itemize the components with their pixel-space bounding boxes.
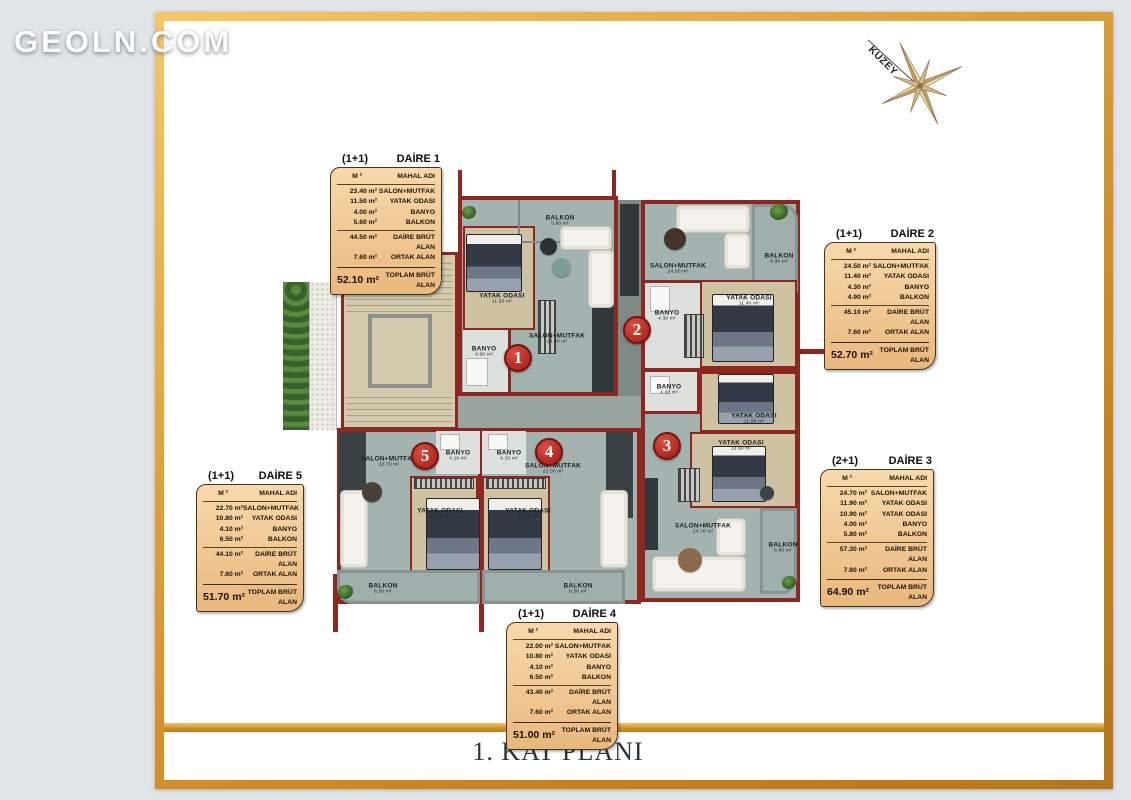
site-logo: GEOLN.COM (14, 24, 232, 60)
total-area-value: 64.90 m² (827, 585, 869, 601)
sofa-graphic (588, 250, 614, 308)
sofa-graphic (724, 233, 750, 269)
table-row: 7.60 m²ORTAK ALAN (337, 253, 435, 263)
table-row: 4.30 m²BANYO (831, 283, 929, 293)
table-row: 23.40 m²SALON+MUTFAK (337, 187, 435, 197)
title-band-divider (164, 723, 1104, 732)
table-graphic (760, 486, 774, 500)
unit-area-table: M ²MAHAL ADI 24.50 m²SALON+MUTFAK 11.40 … (824, 242, 936, 370)
table-row: 4.10 m²BANYO (513, 663, 611, 673)
compass-rose: KUZEY (856, 26, 968, 138)
room-name: SALON+MUTFAK (867, 489, 927, 499)
room-label: SALON+MUTFAK24.50 m² (650, 263, 706, 276)
table-row: 5.80 m²BALKON (827, 530, 927, 540)
area-value: 5.60 m² (337, 218, 377, 228)
room-area: 11.50 m² (479, 300, 524, 306)
room-label: BALKON4.90 m² (764, 253, 793, 266)
room-area: 10.80 m² (417, 515, 462, 521)
row-label: DAİRE BRÜT ALAN (871, 308, 929, 328)
area-value: 4.90 m² (831, 293, 871, 303)
row-label: ORTAK ALAN (243, 570, 297, 580)
table-row: 10.80 m²YATAK ODASI (203, 514, 297, 524)
green-planting (283, 282, 309, 430)
balcony-floor (482, 570, 625, 604)
info-card-daire-4: (1+1) DAİRE 4 M ²MAHAL ADI 22.00 m²SALON… (506, 608, 618, 750)
room-name: YATAK ODASI (377, 197, 435, 207)
table-row: 6.50 m²BALKON (203, 535, 297, 545)
area-value: 24.50 m² (831, 262, 871, 272)
room-area: 24.70 m² (675, 530, 731, 536)
room-name: BALKON (243, 535, 297, 545)
room-column-header: MAHAL ADI (243, 489, 297, 499)
wardrobe (414, 478, 474, 489)
row-label: DAİRE BRÜT ALAN (867, 545, 927, 565)
elevator (368, 314, 432, 388)
corridor-floor (458, 396, 641, 428)
room-area: 4.90 m² (764, 260, 793, 266)
area-value: 44.10 m² (203, 550, 243, 560)
table-row: 4.90 m²BALKON (831, 293, 929, 303)
room-label: BANYO4.10 m² (446, 450, 470, 463)
table-row: 7.60 m²ORTAK ALAN (827, 566, 927, 576)
table-header-row: M ²MAHAL ADI (831, 247, 929, 260)
room-area: 11.90 m² (731, 420, 776, 426)
area-value: 4.30 m² (831, 283, 871, 293)
room-label: BANYO4.00 m² (657, 384, 681, 397)
info-card-daire-3: (2+1) DAİRE 3 M ²MAHAL ADI 24.70 m²SALON… (820, 455, 934, 607)
kitchen-counter (592, 300, 614, 392)
room-area: 22.00 m² (525, 470, 581, 476)
bathtub (440, 434, 460, 450)
area-value: 24.70 m² (827, 489, 867, 499)
table-row: 7.60 m²ORTAK ALAN (203, 570, 297, 580)
table-row: 24.70 m²SALON+MUTFAK (827, 489, 927, 499)
card-header: (1+1) DAİRE 1 (330, 153, 442, 167)
room-area: 5.60 m² (545, 222, 574, 228)
total-label: TOPLAM BRÜT ALAN (245, 588, 297, 608)
table-row: 22.70 m²SALON+MUTFAK (203, 504, 297, 514)
total-label: TOPLAM BRÜT ALAN (873, 346, 929, 366)
room-area: 5.80 m² (768, 549, 797, 555)
area-value: 4.10 m² (203, 525, 243, 535)
card-header: (1+1) DAİRE 4 (506, 608, 618, 622)
total-label: TOPLAM BRÜT ALAN (379, 271, 435, 291)
unit-number-badge: 1 (504, 344, 532, 372)
area-value: 7.60 m² (827, 566, 867, 576)
total-area-value: 52.10 m² (337, 273, 379, 289)
room-area: 22.70 m² (361, 463, 417, 469)
area-value: 10.80 m² (513, 652, 553, 662)
room-area: 4.30 m² (655, 317, 679, 323)
room-name: BALKON (871, 293, 929, 303)
wardrobe (538, 300, 556, 354)
area-value: 7.60 m² (337, 253, 377, 263)
balcony-floor (337, 570, 480, 604)
area-value: 22.70 m² (203, 504, 243, 514)
table-row: 10.80 m²YATAK ODASI (513, 652, 611, 662)
sofa-graphic (560, 226, 612, 250)
area-value: 45.10 m² (831, 308, 871, 318)
room-area: 10.90 m² (718, 447, 763, 453)
area-column-header: M ² (337, 172, 377, 182)
sofa-graphic (340, 490, 368, 568)
row-label: DAİRE BRÜT ALAN (553, 688, 611, 708)
total-area-value: 51.70 m² (203, 590, 245, 606)
room-area: 24.50 m² (650, 270, 706, 276)
unit-name: DAİRE 2 (891, 228, 934, 240)
area-value: 6.50 m² (203, 535, 243, 545)
area-value: 10.90 m² (827, 510, 867, 520)
table-row: 11.50 m²YATAK ODASI (337, 197, 435, 207)
unit-number-badge: 5 (411, 442, 439, 470)
total-label: TOPLAM BRÜT ALAN (869, 583, 927, 603)
area-value: 5.80 m² (827, 530, 867, 540)
card-header: (1+1) DAİRE 2 (824, 228, 936, 242)
area-value: 4.00 m² (827, 520, 867, 530)
table-graphic (362, 482, 382, 502)
table-row: 44.10 m²DAİRE BRÜT ALAN (203, 547, 297, 570)
room-area: 4.00 m² (657, 391, 681, 397)
area-column-header: M ² (831, 247, 871, 257)
room-area: 11.40 m² (726, 302, 771, 308)
gravel-path (309, 282, 337, 430)
area-value: 6.50 m² (513, 673, 553, 683)
row-label: ORTAK ALAN (867, 566, 927, 576)
room-name: BANYO (867, 520, 927, 530)
room-label: BALKON5.60 m² (545, 215, 574, 228)
room-area: 23.40 m² (529, 340, 585, 346)
row-label: ORTAK ALAN (871, 328, 929, 338)
room-name: BALKON (377, 218, 435, 228)
room-label: BALKON6.50 m² (368, 583, 397, 596)
room-name: YATAK ODASI (553, 652, 611, 662)
room-label: YATAK ODASI11.90 m² (731, 413, 776, 426)
area-value: 4.10 m² (513, 663, 553, 673)
unit-type: (2+1) (832, 455, 858, 467)
bed-graphic (466, 234, 522, 292)
total-area-value: 51.00 m² (513, 728, 555, 744)
row-label: ORTAK ALAN (553, 708, 611, 718)
table-header-row: M ²MAHAL ADI (203, 489, 297, 502)
room-column-header: MAHAL ADI (377, 172, 435, 182)
room-column-header: MAHAL ADI (871, 247, 929, 257)
table-row: 4.00 m²BANYO (337, 208, 435, 218)
room-name: BANYO (377, 208, 435, 218)
room-column-header: MAHAL ADI (553, 627, 611, 637)
room-label: BANYO4.00 m² (472, 346, 496, 359)
room-label: BANYO4.10 m² (497, 450, 521, 463)
row-label: ORTAK ALAN (377, 253, 435, 263)
unit-type: (1+1) (208, 470, 234, 482)
total-row: 52.70 m²TOPLAM BRÜT ALAN (831, 342, 929, 366)
bathtub (650, 286, 670, 312)
area-column-header: M ² (203, 489, 243, 499)
unit-name: DAİRE 5 (259, 470, 302, 482)
table-row: 11.90 m²YATAK ODASI (827, 499, 927, 509)
table-header-row: M ²MAHAL ADI (827, 474, 927, 487)
north-label: KUZEY (866, 44, 900, 78)
table-graphic (552, 258, 571, 277)
room-label: SALON+MUTFAK23.40 m² (529, 333, 585, 346)
area-value: 7.60 m² (203, 570, 243, 580)
unit-area-table: M ²MAHAL ADI 22.00 m²SALON+MUTFAK 10.80 … (506, 622, 618, 750)
area-value: 22.00 m² (513, 642, 553, 652)
room-column-header: MAHAL ADI (867, 474, 927, 484)
wardrobe (684, 314, 704, 358)
room-name: SALON+MUTFAK (377, 187, 435, 197)
table-row: 7.60 m²ORTAK ALAN (513, 708, 611, 718)
row-label: DAİRE BRÜT ALAN (377, 233, 435, 253)
total-row: 51.70 m²TOPLAM BRÜT ALAN (203, 584, 297, 608)
info-card-daire-5: (1+1) DAİRE 5 M ²MAHAL ADI 22.70 m²SALON… (196, 470, 304, 612)
room-name: BANYO (871, 283, 929, 293)
bathtub (488, 434, 508, 450)
area-value: 11.50 m² (337, 197, 377, 207)
unit-area-table: M ²MAHAL ADI 22.70 m²SALON+MUTFAK 10.80 … (196, 484, 304, 612)
room-label: SALON+MUTFAK24.70 m² (675, 523, 731, 536)
table-row: 22.00 m²SALON+MUTFAK (513, 642, 611, 652)
table-header-row: M ²MAHAL ADI (337, 172, 435, 185)
room-label: YATAK ODASI10.80 m² (505, 508, 550, 521)
table-graphic (678, 548, 702, 572)
room-name: BALKON (867, 530, 927, 540)
area-value: 11.40 m² (831, 272, 871, 282)
wardrobe (678, 468, 700, 502)
bed-graphic (712, 446, 766, 502)
unit-name: DAİRE 3 (889, 455, 932, 467)
area-column-header: M ² (827, 474, 867, 484)
unit-area-table: M ²MAHAL ADI 24.70 m²SALON+MUTFAK 11.90 … (820, 469, 934, 607)
table-graphic (664, 228, 686, 250)
room-area: 4.10 m² (497, 457, 521, 463)
card-header: (1+1) DAİRE 5 (196, 470, 304, 484)
table-row: 6.50 m²BALKON (513, 673, 611, 683)
table-row: 5.60 m²BALKON (337, 218, 435, 228)
unit-area-table: M ²MAHAL ADI 23.40 m²SALON+MUTFAK 11.50 … (330, 167, 442, 295)
unit-number-badge: 3 (653, 432, 681, 460)
unit-name: DAİRE 1 (397, 153, 440, 165)
table-row: 24.50 m²SALON+MUTFAK (831, 262, 929, 272)
room-area: 6.50 m² (368, 590, 397, 596)
table-row: 4.00 m²BANYO (827, 520, 927, 530)
total-row: 51.00 m²TOPLAM BRÜT ALAN (513, 722, 611, 746)
unit-name: DAİRE 4 (573, 608, 616, 620)
room-area: 4.00 m² (472, 353, 496, 359)
room-label: YATAK ODASI11.50 m² (479, 293, 524, 306)
table-row: 4.10 m²BANYO (203, 525, 297, 535)
info-card-daire-1: (1+1) DAİRE 1 M ²MAHAL ADI 23.40 m²SALON… (330, 153, 442, 295)
stairs (346, 392, 452, 426)
row-label: DAİRE BRÜT ALAN (243, 550, 297, 570)
unit-type: (1+1) (342, 153, 368, 165)
area-value: 57.30 m² (827, 545, 867, 555)
sofa-graphic (600, 490, 628, 568)
wardrobe (486, 478, 546, 489)
card-header: (2+1) DAİRE 3 (820, 455, 934, 469)
room-name: YATAK ODASI (867, 510, 927, 520)
room-name: YATAK ODASI (867, 499, 927, 509)
unit-type: (1+1) (518, 608, 544, 620)
area-value: 7.60 m² (513, 708, 553, 718)
area-value: 4.00 m² (337, 208, 377, 218)
room-name: BANYO (553, 663, 611, 673)
kitchen-counter (645, 478, 658, 550)
room-label: YATAK ODASI10.90 m² (718, 440, 763, 453)
room-label: YATAK ODASI10.80 m² (417, 508, 462, 521)
room-label: YATAK ODASI11.40 m² (726, 295, 771, 308)
table-header-row: M ²MAHAL ADI (513, 627, 611, 640)
table-row: 45.10 m²DAİRE BRÜT ALAN (831, 305, 929, 328)
room-name: YATAK ODASI (243, 514, 297, 524)
room-name: BALKON (553, 673, 611, 683)
room-label: BALKON5.80 m² (768, 542, 797, 555)
table-row: 43.40 m²DAİRE BRÜT ALAN (513, 685, 611, 708)
area-column-header: M ² (513, 627, 553, 637)
total-label: TOPLAM BRÜT ALAN (555, 726, 611, 746)
total-row: 52.10 m²TOPLAM BRÜT ALAN (337, 267, 435, 291)
room-area: 4.10 m² (446, 457, 470, 463)
room-name: BANYO (243, 525, 297, 535)
room-label: SALON+MUTFAK22.70 m² (361, 456, 417, 469)
area-value: 43.40 m² (513, 688, 553, 698)
compass-rose-icon: KUZEY (856, 26, 968, 138)
table-row: 44.50 m²DAİRE BRÜT ALAN (337, 230, 435, 253)
unit-type: (1+1) (836, 228, 862, 240)
area-value: 11.90 m² (827, 499, 867, 509)
area-value: 23.40 m² (337, 187, 377, 197)
room-name: YATAK ODASI (871, 272, 929, 282)
table-graphic (540, 238, 557, 255)
room-label: BANYO4.30 m² (655, 310, 679, 323)
room-area: 6.50 m² (563, 590, 592, 596)
room-name: SALON+MUTFAK (553, 642, 611, 652)
total-row: 64.90 m²TOPLAM BRÜT ALAN (827, 579, 927, 603)
info-card-daire-2: (1+1) DAİRE 2 M ²MAHAL ADI 24.50 m²SALON… (824, 228, 936, 370)
bathtub (466, 358, 488, 386)
table-row: 10.90 m²YATAK ODASI (827, 510, 927, 520)
unit-number-badge: 4 (535, 438, 563, 466)
table-row: 11.40 m²YATAK ODASI (831, 272, 929, 282)
room-area: 10.80 m² (505, 515, 550, 521)
room-name: SALON+MUTFAK (871, 262, 929, 272)
room-name: SALON+MUTFAK (243, 504, 299, 514)
sofa-graphic (676, 205, 750, 233)
unit-number-badge: 2 (623, 316, 651, 344)
kitchen-counter (620, 204, 639, 296)
area-value: 7.60 m² (831, 328, 871, 338)
total-area-value: 52.70 m² (831, 348, 873, 364)
table-row: 7.60 m²ORTAK ALAN (831, 328, 929, 338)
area-value: 44.50 m² (337, 233, 377, 243)
table-row: 57.30 m²DAİRE BRÜT ALAN (827, 542, 927, 565)
room-label: BALKON6.50 m² (563, 583, 592, 596)
page: 1. KAT PLANI GEOLN.COM KUZEY (0, 0, 1131, 800)
area-value: 10.80 m² (203, 514, 243, 524)
